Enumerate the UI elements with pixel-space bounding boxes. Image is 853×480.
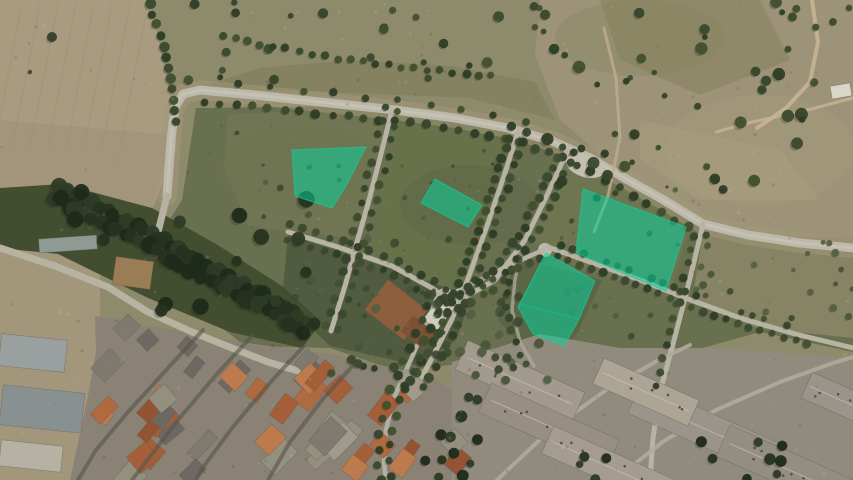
- grain-dot: [429, 293, 432, 296]
- tree: [310, 109, 320, 119]
- tree: [783, 322, 791, 330]
- tree: [788, 12, 797, 21]
- tree: [327, 369, 335, 377]
- grain-dot: [265, 459, 268, 462]
- grain-dot: [481, 69, 483, 71]
- grain-dot: [383, 3, 386, 6]
- tree: [446, 236, 452, 242]
- grain-dot: [409, 33, 412, 36]
- tree: [632, 281, 640, 289]
- grain-dot: [466, 433, 469, 436]
- grain-dot: [506, 469, 509, 472]
- tree: [457, 293, 464, 300]
- tree: [463, 258, 471, 266]
- grain-dot: [770, 459, 771, 460]
- grain-dot: [772, 183, 775, 186]
- grain-dot: [289, 454, 292, 457]
- tree: [379, 117, 387, 125]
- roof-unit: [526, 411, 529, 414]
- tree: [846, 5, 853, 12]
- tree: [432, 363, 440, 371]
- tree: [532, 24, 538, 30]
- tree: [420, 383, 428, 391]
- tree: [347, 55, 355, 63]
- grain-dot: [565, 445, 568, 448]
- tree: [148, 11, 156, 19]
- tree: [515, 232, 523, 240]
- roof-unit: [560, 442, 563, 445]
- tree: [559, 144, 566, 151]
- grain-dot: [699, 119, 700, 120]
- tree: [321, 247, 328, 254]
- tree: [155, 304, 167, 316]
- grain-dot: [435, 450, 437, 452]
- tree: [488, 187, 496, 195]
- tree: [652, 70, 657, 75]
- grain-dot: [790, 71, 792, 73]
- tree: [513, 317, 523, 327]
- roof-unit: [752, 458, 755, 461]
- tree: [621, 276, 630, 285]
- grain-dot: [395, 97, 398, 100]
- tree: [480, 291, 487, 298]
- tree: [439, 39, 448, 48]
- grain-dot: [187, 171, 190, 174]
- grain-dot: [737, 211, 741, 215]
- map-detail: [665, 95, 853, 205]
- tree: [379, 415, 387, 423]
- tree: [557, 176, 568, 187]
- tree: [365, 246, 374, 255]
- tree: [656, 369, 664, 377]
- grain-dot: [468, 371, 469, 372]
- grain-dot: [90, 69, 93, 72]
- tree: [611, 274, 618, 281]
- tree: [554, 153, 563, 162]
- tree: [499, 195, 506, 202]
- tree: [327, 235, 334, 242]
- tree: [769, 330, 776, 337]
- tree: [832, 249, 840, 257]
- grain-dot: [634, 446, 637, 449]
- tree: [745, 324, 753, 332]
- grain-dot: [807, 450, 809, 452]
- tree: [594, 82, 600, 88]
- tree: [629, 129, 639, 139]
- tree: [699, 308, 708, 317]
- roof-unit: [581, 450, 584, 453]
- grain-dot: [60, 56, 62, 58]
- grain-dot: [59, 310, 63, 314]
- tree: [368, 158, 376, 166]
- tree: [653, 383, 660, 390]
- grain-dot: [565, 240, 567, 242]
- tree: [483, 149, 486, 152]
- grain-dot: [680, 165, 682, 167]
- grain-dot: [240, 104, 243, 107]
- grain-dot: [220, 124, 222, 126]
- tree: [821, 240, 826, 245]
- grain-dot: [160, 291, 162, 293]
- grain-dot: [406, 324, 408, 326]
- grain-dot: [473, 365, 474, 366]
- grain-dot: [203, 471, 206, 474]
- tree: [698, 263, 705, 270]
- grain-dot: [330, 472, 333, 475]
- grain-dot: [250, 12, 253, 15]
- grain-dot: [154, 291, 157, 294]
- tree: [719, 185, 728, 194]
- tree: [368, 263, 375, 270]
- tree: [339, 267, 348, 276]
- tree: [357, 259, 365, 267]
- tree: [373, 461, 381, 469]
- tree: [331, 295, 339, 303]
- tree: [480, 283, 486, 289]
- grain-dot: [728, 189, 731, 192]
- tree: [567, 159, 575, 167]
- tree: [782, 110, 794, 122]
- tree: [539, 182, 547, 190]
- tree: [391, 123, 398, 130]
- tree: [425, 75, 432, 82]
- grain-dot: [692, 95, 695, 98]
- tree: [454, 321, 462, 329]
- tree: [333, 250, 341, 258]
- grain-dot: [171, 97, 174, 100]
- tree: [763, 308, 770, 315]
- grain-dot: [515, 156, 517, 158]
- grain-dot: [35, 25, 38, 28]
- grain-dot: [752, 424, 754, 426]
- tree: [281, 44, 289, 52]
- tree: [673, 187, 678, 192]
- tree: [502, 353, 511, 362]
- grain-dot: [333, 86, 336, 89]
- tree: [777, 441, 787, 451]
- grain-dot: [264, 471, 266, 473]
- tree: [467, 288, 475, 296]
- tree: [657, 208, 666, 217]
- grain-dot: [615, 469, 617, 471]
- grain-dot: [698, 203, 701, 206]
- tree: [791, 268, 795, 272]
- tree: [501, 376, 510, 385]
- tree: [530, 144, 540, 154]
- grain-dot: [566, 400, 569, 403]
- tree: [735, 116, 747, 128]
- grain-dot: [581, 381, 583, 383]
- grain-dot: [173, 257, 174, 258]
- tree: [399, 357, 407, 365]
- grain-dot: [367, 353, 370, 356]
- tree: [152, 19, 162, 29]
- tree: [420, 456, 430, 466]
- tree: [517, 352, 524, 359]
- grain-dot: [11, 303, 13, 305]
- tree: [201, 99, 209, 107]
- tree: [727, 288, 733, 294]
- tree: [495, 206, 502, 213]
- roof-unit: [837, 393, 840, 396]
- grain-dot: [270, 124, 273, 127]
- tree: [345, 111, 353, 119]
- tree: [503, 248, 511, 256]
- grain-dot: [404, 81, 407, 84]
- tree: [637, 54, 647, 64]
- tree: [434, 329, 443, 338]
- satellite-map[interactable]: [0, 0, 853, 480]
- tree: [648, 312, 654, 318]
- grain-dot: [420, 54, 423, 57]
- grain-dot: [441, 362, 443, 364]
- tree: [779, 9, 785, 15]
- grain-dot: [220, 401, 222, 403]
- grain-dot: [611, 37, 613, 39]
- grain-dot: [427, 238, 430, 241]
- tree: [793, 5, 801, 13]
- grain-dot: [213, 380, 215, 382]
- tree: [263, 179, 268, 184]
- grain-dot: [423, 303, 425, 305]
- tree: [634, 8, 644, 18]
- tree: [616, 183, 624, 191]
- tree: [667, 295, 674, 302]
- tree: [404, 277, 411, 284]
- tree: [693, 287, 699, 293]
- grain-dot: [535, 97, 537, 99]
- tree: [353, 213, 361, 221]
- grain-dot: [609, 297, 612, 300]
- grain-dot: [778, 173, 780, 175]
- tree: [723, 315, 730, 322]
- grain-dot: [28, 133, 29, 134]
- tree: [373, 304, 381, 312]
- tree: [419, 335, 429, 345]
- tree: [514, 150, 523, 159]
- tree: [696, 436, 707, 447]
- grain-dot: [691, 199, 695, 203]
- grain-dot: [821, 91, 823, 93]
- tree: [440, 293, 449, 302]
- grain-dot: [771, 257, 774, 260]
- tree: [699, 24, 709, 34]
- tree: [405, 343, 415, 353]
- tree: [775, 455, 787, 467]
- tree: [298, 224, 307, 233]
- tree: [560, 236, 564, 240]
- tree: [410, 368, 418, 376]
- tree: [217, 74, 223, 80]
- grain-dot: [767, 302, 769, 304]
- tree: [543, 376, 551, 384]
- tree: [601, 150, 609, 158]
- tree: [494, 164, 503, 173]
- tree: [540, 10, 550, 20]
- tree: [386, 153, 393, 160]
- grain-dot: [720, 293, 723, 296]
- tree: [549, 44, 559, 54]
- grain-dot: [798, 424, 802, 428]
- tree: [673, 300, 680, 307]
- tree: [602, 170, 613, 181]
- grain-dot: [219, 294, 222, 297]
- tree: [424, 67, 431, 74]
- grain-dot: [365, 348, 366, 349]
- grain-dot: [31, 97, 33, 99]
- grain-dot: [737, 218, 739, 220]
- tree: [232, 208, 248, 224]
- tree: [436, 66, 443, 73]
- tree: [364, 285, 370, 291]
- tree: [389, 7, 396, 14]
- tree: [424, 348, 433, 357]
- tree: [805, 251, 810, 256]
- grain-dot: [775, 216, 777, 218]
- grain-dot: [830, 85, 832, 87]
- grain-dot: [253, 226, 255, 228]
- tree: [546, 204, 554, 212]
- tree: [256, 41, 264, 49]
- tree: [498, 311, 504, 317]
- grain-dot: [678, 164, 680, 166]
- tree: [564, 257, 571, 264]
- tree: [354, 243, 362, 251]
- tree: [694, 103, 701, 110]
- grain-dot: [330, 89, 332, 91]
- tree: [382, 104, 389, 111]
- grain-dot: [143, 289, 145, 291]
- tree: [262, 163, 265, 166]
- tree: [360, 57, 367, 64]
- grain-dot: [189, 454, 192, 457]
- grain-dot: [305, 458, 308, 461]
- grain-dot: [754, 428, 755, 429]
- grain-dot: [536, 190, 538, 192]
- tree: [489, 267, 498, 276]
- grain-dot: [248, 222, 250, 224]
- grain-dot: [116, 159, 118, 161]
- grain-dot: [778, 135, 779, 136]
- grain-dot: [546, 199, 548, 201]
- grain-dot: [297, 288, 299, 290]
- grain-dot: [622, 388, 625, 391]
- tree: [708, 271, 715, 278]
- tree: [463, 70, 472, 79]
- grain-dot: [561, 447, 564, 450]
- tree: [502, 143, 511, 152]
- tree: [28, 70, 32, 74]
- tree: [286, 220, 294, 228]
- grain-dot: [75, 477, 76, 478]
- tree: [613, 313, 619, 319]
- grain-dot: [438, 321, 442, 325]
- grain-dot: [317, 218, 320, 221]
- tree: [395, 257, 404, 266]
- tree: [385, 457, 392, 464]
- tree: [396, 396, 404, 404]
- grain-dot: [808, 154, 810, 156]
- grain-dot: [346, 103, 349, 106]
- grain-dot: [355, 227, 358, 230]
- tree: [761, 316, 767, 322]
- grain-dot: [667, 372, 670, 375]
- grain-dot: [672, 185, 674, 187]
- grain-dot: [460, 411, 463, 414]
- tree: [513, 255, 520, 262]
- tree: [270, 43, 277, 50]
- tree: [523, 211, 532, 220]
- grain-dot: [85, 168, 88, 171]
- grain-dot: [188, 360, 190, 362]
- grain-dot: [115, 319, 118, 322]
- grain-dot: [788, 85, 790, 87]
- grain-dot: [231, 465, 234, 468]
- building: [112, 256, 154, 289]
- tree: [300, 88, 307, 95]
- tree: [390, 271, 399, 280]
- tree: [703, 163, 710, 170]
- tree: [375, 446, 383, 454]
- tree: [449, 448, 460, 459]
- tree: [335, 325, 342, 332]
- tree: [374, 430, 383, 439]
- grain-dot: [459, 353, 462, 356]
- tree: [391, 239, 400, 248]
- tree: [478, 348, 485, 355]
- grain-dot: [326, 441, 327, 442]
- tree: [748, 175, 760, 187]
- grain-dot: [162, 92, 164, 94]
- tree: [248, 101, 256, 109]
- tree: [522, 118, 530, 126]
- grain-dot: [251, 23, 253, 25]
- grain-dot: [177, 272, 180, 275]
- tree: [708, 454, 718, 464]
- grain-dot: [150, 83, 152, 85]
- tree: [780, 334, 787, 341]
- grain-dot: [435, 314, 438, 317]
- tree: [549, 164, 557, 172]
- tree: [295, 106, 304, 115]
- tree: [475, 72, 483, 80]
- tree: [519, 138, 528, 147]
- tree: [413, 286, 420, 293]
- tree: [391, 117, 399, 125]
- grain-dot: [502, 229, 504, 231]
- tree: [157, 31, 166, 40]
- tree: [495, 365, 503, 373]
- tree: [253, 229, 269, 245]
- tree: [428, 102, 435, 109]
- grain-dot: [457, 416, 460, 419]
- grain-dot: [48, 431, 50, 433]
- tree: [528, 235, 536, 243]
- building: [0, 334, 67, 373]
- tree: [526, 259, 534, 267]
- grain-dot: [66, 313, 69, 316]
- tree: [330, 112, 337, 119]
- tree: [400, 382, 409, 391]
- tree: [368, 209, 375, 216]
- grain-dot: [284, 26, 287, 29]
- tree: [270, 295, 282, 307]
- tree: [359, 114, 367, 122]
- roof-unit: [630, 377, 633, 380]
- grain-dot: [680, 220, 681, 221]
- tree: [490, 276, 497, 283]
- tree: [508, 265, 516, 273]
